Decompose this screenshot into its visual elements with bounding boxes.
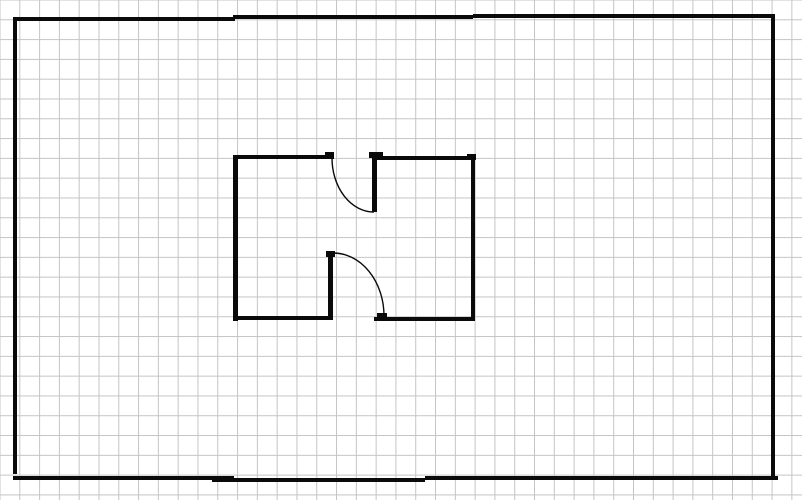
door-top-jamb[interactable] — [325, 152, 334, 159]
room-wall-top-left[interactable] — [233, 155, 333, 159]
door-top-leaf[interactable] — [372, 156, 377, 212]
room-wall-bottom-left[interactable] — [233, 316, 333, 320]
door-bottom-swing-arc — [333, 253, 384, 316]
door-bottom-leaf[interactable] — [328, 252, 333, 316]
outer-wall-left[interactable] — [13, 17, 17, 474]
door-swing-layer — [0, 0, 802, 500]
outer-wall-top-right-segment[interactable] — [473, 14, 775, 18]
room-wall-bottom-right[interactable] — [374, 317, 475, 321]
outer-wall-right[interactable] — [771, 14, 775, 479]
room-wall-top-right[interactable] — [374, 156, 475, 160]
outer-wall-bottom-left-segment[interactable] — [13, 476, 234, 480]
door-bottom-jamb[interactable] — [377, 313, 387, 318]
outer-wall-bottom-middle-segment[interactable] — [212, 478, 425, 482]
door-top-swing-arc — [332, 158, 374, 212]
outer-wall-bottom-right-segment[interactable] — [425, 476, 778, 480]
room-wall-right[interactable] — [471, 156, 475, 321]
door-bottom-hinge-plate[interactable] — [326, 251, 335, 257]
room-corner-cap-top-right[interactable] — [467, 154, 476, 160]
room-wall-left[interactable] — [233, 155, 238, 321]
door-top-hinge-plate[interactable] — [369, 152, 383, 158]
outer-wall-top-middle-segment[interactable] — [233, 15, 473, 19]
drawing-canvas[interactable] — [0, 0, 802, 500]
outer-wall-top-left-segment[interactable] — [13, 17, 235, 21]
